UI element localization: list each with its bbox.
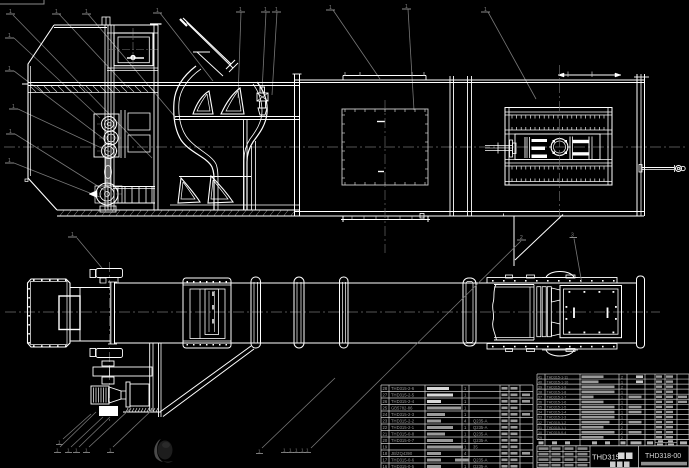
svg-text:33: 33 bbox=[538, 416, 542, 420]
svg-text:THD315-0-8: THD315-0-8 bbox=[391, 432, 415, 437]
svg-text:21: 21 bbox=[383, 432, 388, 437]
svg-text:1: 1 bbox=[621, 406, 623, 410]
svg-text:1: 1 bbox=[8, 66, 11, 72]
svg-text:1: 1 bbox=[329, 5, 332, 11]
svg-text:20: 20 bbox=[383, 438, 388, 443]
svg-text:1: 1 bbox=[621, 396, 623, 400]
svg-text:24: 24 bbox=[383, 412, 388, 417]
svg-text:17: 17 bbox=[383, 458, 388, 463]
svg-text:THD315-1-8: THD315-1-8 bbox=[547, 390, 567, 394]
svg-text:Q235-A: Q235-A bbox=[473, 432, 488, 437]
svg-text:THD315-1-9: THD315-1-9 bbox=[547, 385, 567, 389]
svg-text:35: 35 bbox=[538, 406, 542, 410]
svg-text:1: 1 bbox=[9, 9, 12, 15]
svg-text:2: 2 bbox=[520, 235, 523, 241]
svg-text:JB/ZQ4390: JB/ZQ4390 bbox=[391, 451, 413, 456]
svg-text:27: 27 bbox=[383, 393, 388, 398]
svg-text:Q235-A: Q235-A bbox=[473, 458, 488, 463]
svg-text:23: 23 bbox=[383, 419, 388, 424]
svg-text:1: 1 bbox=[621, 411, 623, 415]
svg-text:THD315-0-4: THD315-0-4 bbox=[547, 431, 567, 435]
svg-text:35: 35 bbox=[473, 445, 478, 450]
svg-text:22: 22 bbox=[383, 425, 388, 430]
svg-text:2: 2 bbox=[621, 421, 623, 425]
svg-text:40: 40 bbox=[538, 380, 542, 384]
svg-text:THD315-1-3: THD315-1-3 bbox=[547, 416, 567, 420]
svg-text:2: 2 bbox=[621, 375, 623, 379]
svg-text:1: 1 bbox=[239, 7, 242, 13]
svg-text:3: 3 bbox=[571, 233, 574, 239]
svg-text:16: 16 bbox=[383, 464, 388, 468]
svg-text:18: 18 bbox=[383, 451, 388, 456]
svg-text:THD315-1-10: THD315-1-10 bbox=[547, 380, 569, 384]
svg-text:2: 2 bbox=[621, 426, 623, 430]
svg-text:THD315-0-7: THD315-0-7 bbox=[391, 438, 415, 443]
svg-text:THD315-2-2: THD315-2-2 bbox=[391, 419, 415, 424]
svg-text:37: 37 bbox=[538, 396, 542, 400]
svg-text:41: 41 bbox=[538, 375, 542, 379]
svg-text:36: 36 bbox=[538, 401, 542, 405]
svg-text:1: 1 bbox=[275, 7, 278, 13]
svg-text:1: 1 bbox=[8, 33, 11, 39]
svg-text:1: 1 bbox=[8, 158, 11, 164]
svg-text:39: 39 bbox=[538, 385, 542, 389]
svg-text:THD315-2-1: THD315-2-1 bbox=[391, 425, 415, 430]
svg-text:1: 1 bbox=[156, 8, 159, 14]
svg-text:Q235-A: Q235-A bbox=[473, 464, 488, 468]
svg-text:1: 1 bbox=[9, 129, 12, 135]
svg-text:THD315-0-6: THD315-0-6 bbox=[391, 458, 415, 463]
svg-text:THD315-1-7: THD315-1-7 bbox=[547, 396, 567, 400]
svg-text:THD315-0-5: THD315-0-5 bbox=[391, 464, 415, 468]
svg-text:THD318-00: THD318-00 bbox=[645, 453, 681, 460]
svg-text:THD315-1-2: THD315-1-2 bbox=[547, 421, 567, 425]
svg-text:1: 1 bbox=[405, 4, 408, 10]
svg-text:1: 1 bbox=[55, 9, 58, 15]
svg-text:1: 1 bbox=[12, 104, 15, 110]
svg-text:1: 1 bbox=[621, 416, 623, 420]
svg-text:1: 1 bbox=[484, 7, 487, 13]
svg-text:THD315-1-4: THD315-1-4 bbox=[547, 411, 567, 415]
svg-text:THD315-2-3: THD315-2-3 bbox=[391, 412, 415, 417]
svg-text:THD315-1-11: THD315-1-11 bbox=[547, 375, 569, 379]
svg-text:19: 19 bbox=[383, 445, 388, 450]
svg-text:30: 30 bbox=[538, 431, 542, 435]
svg-text:1: 1 bbox=[264, 7, 267, 13]
svg-text:THD315-1-1: THD315-1-1 bbox=[547, 426, 567, 430]
svg-text:THD315-2-5: THD315-2-5 bbox=[391, 393, 415, 398]
svg-text:THD315-2-6: THD315-2-6 bbox=[391, 386, 415, 391]
svg-text:1: 1 bbox=[71, 232, 74, 238]
svg-text:Q235-A: Q235-A bbox=[473, 438, 488, 443]
svg-text:2: 2 bbox=[621, 431, 623, 435]
svg-text:Q235-A: Q235-A bbox=[473, 419, 488, 424]
svg-text:38: 38 bbox=[538, 390, 542, 394]
svg-text:28: 28 bbox=[383, 386, 388, 391]
svg-text:1: 1 bbox=[85, 9, 88, 15]
svg-text:1: 1 bbox=[621, 390, 623, 394]
svg-text:31: 31 bbox=[538, 426, 542, 430]
svg-text:THD315-1-5: THD315-1-5 bbox=[547, 406, 567, 410]
svg-text:1: 1 bbox=[621, 401, 623, 405]
svg-text:26: 26 bbox=[383, 399, 388, 404]
svg-text:THD315-1-6: THD315-1-6 bbox=[547, 401, 567, 405]
svg-text:GB5782-86: GB5782-86 bbox=[391, 406, 413, 411]
svg-text:THD315: THD315 bbox=[592, 453, 620, 462]
svg-text:Q235-A: Q235-A bbox=[473, 425, 488, 430]
svg-text:34: 34 bbox=[538, 411, 542, 415]
svg-text:2: 2 bbox=[621, 385, 623, 389]
svg-text:25: 25 bbox=[383, 406, 388, 411]
svg-text:1: 1 bbox=[621, 380, 623, 384]
svg-text:32: 32 bbox=[538, 421, 542, 425]
svg-text:THD315-2-4: THD315-2-4 bbox=[391, 399, 415, 404]
